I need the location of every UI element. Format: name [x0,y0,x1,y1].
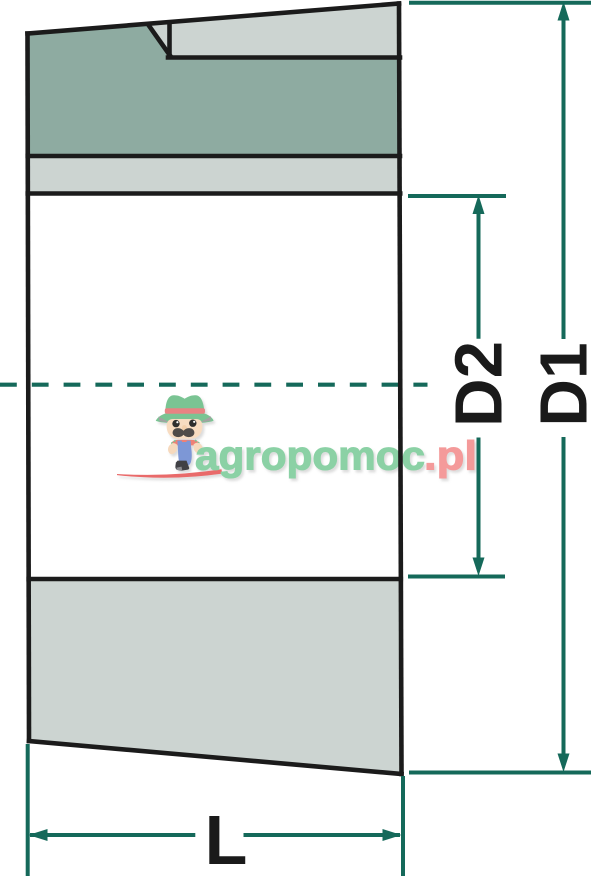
svg-text:L: L [205,801,248,876]
svg-text:.pl: .pl [424,432,477,478]
svg-text:D1: D1 [527,343,600,427]
svg-text:D2: D2 [442,341,517,427]
svg-text:agropomoc: agropomoc [195,432,425,478]
